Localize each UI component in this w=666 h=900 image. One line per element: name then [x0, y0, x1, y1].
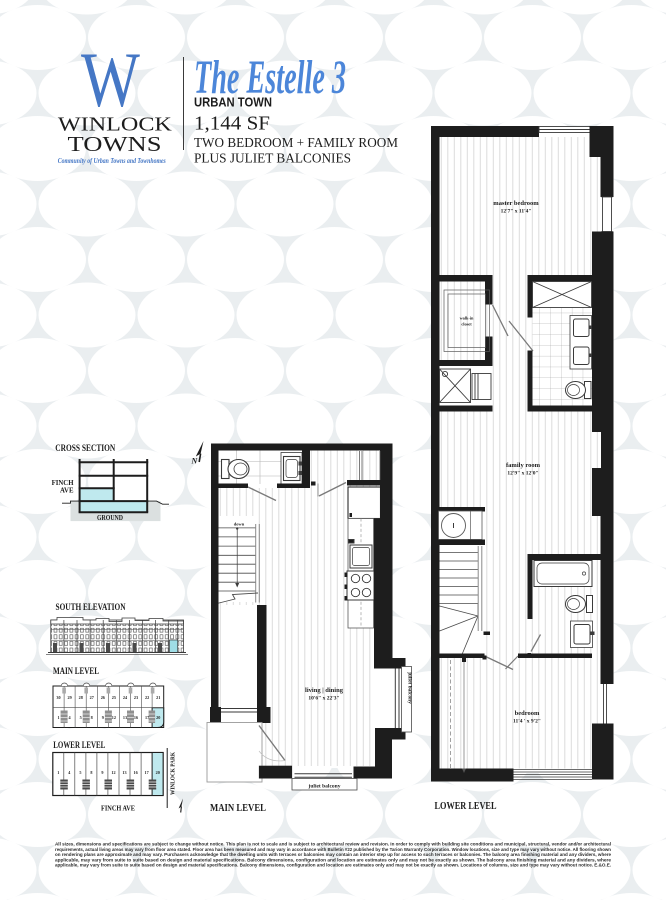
svg-text:20: 20	[156, 715, 160, 720]
svg-text:TOWNS: TOWNS	[68, 132, 162, 156]
svg-text:applicable, may vary from suit: applicable, may vary from suite to suite…	[55, 857, 612, 862]
svg-text:9: 9	[102, 715, 104, 720]
svg-text:8: 8	[91, 715, 93, 720]
svg-text:closet: closet	[461, 322, 472, 327]
svg-text:26: 26	[101, 695, 105, 700]
svg-text:21: 21	[156, 695, 160, 700]
svg-text:SOUTH ELEVATION: SOUTH ELEVATION	[56, 603, 126, 613]
svg-text:MAIN LEVEL: MAIN LEVEL	[53, 667, 99, 677]
svg-text:master bedroom: master bedroom	[493, 200, 539, 207]
svg-text:All sizes, dimensions and spec: All sizes, dimensions and specifications…	[55, 842, 611, 847]
svg-text:juliet balcony: juliet balcony	[407, 671, 413, 704]
svg-text:17: 17	[145, 715, 149, 720]
svg-text:requirements, actual living ar: requirements, actual living areas may va…	[55, 847, 611, 852]
svg-text:AVE: AVE	[60, 488, 74, 495]
svg-text:13: 13	[122, 770, 126, 775]
svg-text:N: N	[191, 457, 199, 466]
svg-text:17: 17	[145, 770, 149, 775]
svg-text:1: 1	[57, 715, 59, 720]
svg-text:juliet balcony: juliet balcony	[308, 784, 341, 790]
svg-text:13: 13	[123, 715, 127, 720]
svg-text:applicable, may vary from suit: applicable, may vary from suite to suite…	[55, 863, 611, 868]
svg-text:1: 1	[57, 770, 59, 775]
svg-text:TWO BEDROOM + FAMILY ROOM: TWO BEDROOM + FAMILY ROOM	[194, 135, 398, 150]
svg-text:LOWER LEVEL: LOWER LEVEL	[435, 800, 497, 812]
svg-text:12'7" x 11'4": 12'7" x 11'4"	[501, 209, 532, 215]
svg-text:GROUND: GROUND	[97, 515, 123, 522]
svg-text:12'9" x 12'0": 12'9" x 12'0"	[507, 471, 538, 477]
svg-text:1,144 SF: 1,144 SF	[194, 114, 270, 135]
svg-text:20: 20	[156, 770, 160, 775]
svg-text:URBAN TOWN: URBAN TOWN	[194, 96, 272, 110]
svg-text:22: 22	[145, 695, 149, 700]
svg-text:12: 12	[111, 770, 115, 775]
svg-text:25: 25	[112, 695, 116, 700]
svg-text:11'4 ' x 9'2": 11'4 ' x 9'2"	[513, 719, 541, 725]
svg-text:29: 29	[68, 695, 72, 700]
svg-text:28: 28	[79, 695, 83, 700]
svg-text:5: 5	[80, 715, 82, 720]
svg-text:MAIN LEVEL: MAIN LEVEL	[210, 802, 266, 814]
svg-text:down: down	[234, 522, 245, 527]
svg-text:10'6" x 22'3": 10'6" x 22'3"	[308, 696, 339, 702]
svg-text:16: 16	[134, 715, 138, 720]
svg-text:8: 8	[90, 770, 92, 775]
svg-text:Community of Urban Towns and T: Community of Urban Towns and Townhomes	[58, 157, 166, 165]
svg-text:27: 27	[90, 695, 94, 700]
svg-text:30: 30	[56, 695, 60, 700]
svg-text:5: 5	[79, 770, 81, 775]
svg-text:FINCH: FINCH	[52, 480, 75, 487]
svg-text:bedroom: bedroom	[515, 710, 540, 717]
svg-text:PLUS JULIET BALCONIES: PLUS JULIET BALCONIES	[194, 151, 351, 166]
svg-text:23: 23	[134, 695, 138, 700]
svg-text:12: 12	[112, 715, 116, 720]
svg-text:on rendering plans are approxi: on rendering plans are approximate and m…	[55, 852, 612, 857]
svg-text:walk-in: walk-in	[460, 316, 474, 321]
svg-text:LOWER LEVEL: LOWER LEVEL	[53, 741, 105, 751]
svg-text:9: 9	[101, 770, 103, 775]
svg-text:W: W	[81, 38, 140, 124]
svg-text:FINCH AVE: FINCH AVE	[101, 804, 135, 813]
svg-text:CROSS SECTION: CROSS SECTION	[55, 444, 115, 454]
svg-text:16: 16	[134, 770, 138, 775]
svg-text:family room: family room	[506, 462, 541, 469]
svg-text:living | dining: living | dining	[305, 687, 344, 694]
svg-text:WINLOCK PARK: WINLOCK PARK	[170, 752, 177, 795]
